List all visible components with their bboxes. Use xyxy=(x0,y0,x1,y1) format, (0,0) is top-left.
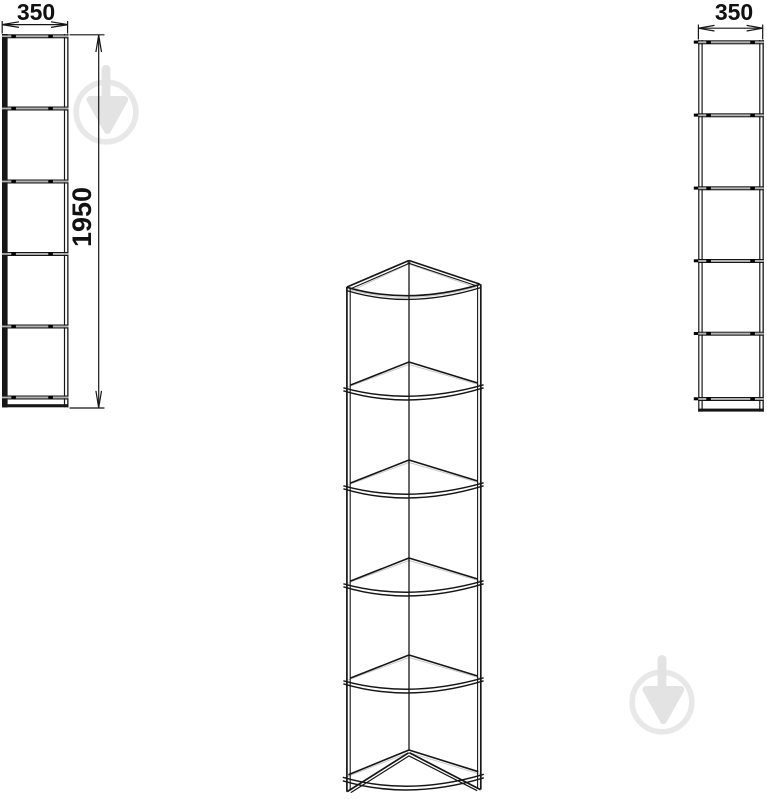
technical-drawing-canvas: 350 1950 350 xyxy=(0,0,767,799)
perspective-view xyxy=(330,253,495,799)
height-dimension-label: 1950 xyxy=(69,167,97,267)
perspective-view-drawing xyxy=(330,253,495,799)
right-side-view xyxy=(690,0,767,420)
shelf-lines xyxy=(694,40,764,401)
shelf-lines xyxy=(2,34,69,399)
gray-accent-lines xyxy=(345,264,481,778)
right-view-drawing xyxy=(690,0,767,420)
width-dimension-label-left: 350 xyxy=(4,1,68,24)
cabinet-body xyxy=(2,34,69,407)
panel-front-edges xyxy=(347,284,481,792)
cabinet-body xyxy=(698,40,764,412)
watermark-trowel-icon xyxy=(612,644,712,754)
width-dimension-label-right: 350 xyxy=(703,1,765,24)
width-dimension-lines xyxy=(698,25,763,40)
